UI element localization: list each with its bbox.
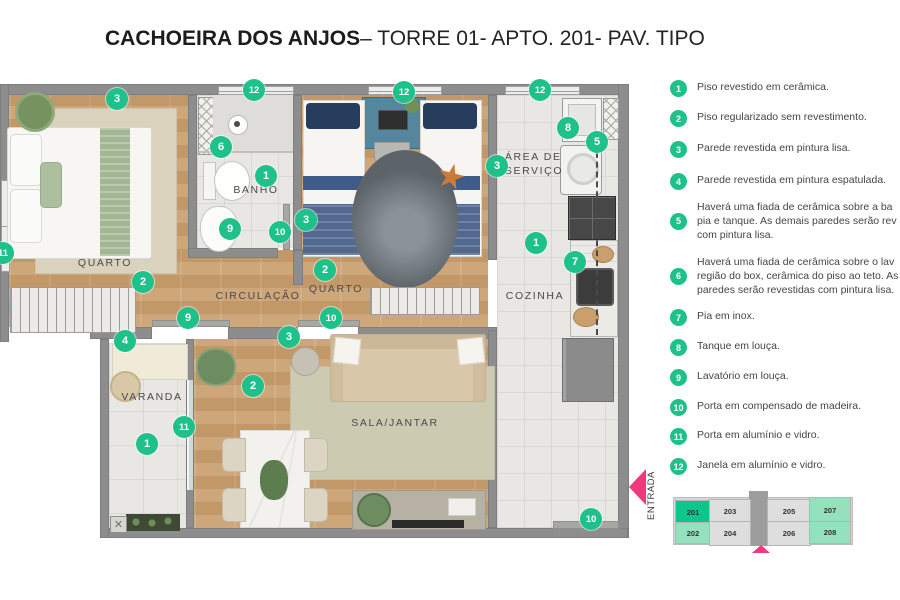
dining-chair bbox=[222, 438, 246, 472]
legend-item-text: Parede revestida em pintura lisa. bbox=[697, 141, 851, 155]
ceramic-band-dashed-line bbox=[596, 142, 598, 335]
legend-item-4: 4Parede revestida em pintura espatulada. bbox=[670, 173, 886, 190]
legend-number-badge: 5 bbox=[670, 213, 687, 230]
room-label-sala-jantar: SALA/JANTAR bbox=[351, 416, 438, 430]
pillow bbox=[10, 189, 42, 243]
wardrobe-quarto2 bbox=[370, 287, 480, 315]
plant-icon bbox=[196, 348, 236, 386]
legend-item-2: 2Piso regularizado sem revestimento. bbox=[670, 110, 867, 127]
plan-marker-7: 7 bbox=[564, 251, 586, 273]
plant-icon bbox=[357, 493, 391, 527]
legend-item-text: Janela em alumínio e vidro. bbox=[697, 458, 825, 472]
legend-item-text: Lavatório em louça. bbox=[697, 369, 789, 383]
plan-marker-12: 12 bbox=[393, 81, 415, 103]
plan-marker-9: 9 bbox=[177, 307, 199, 329]
plant-icon bbox=[15, 92, 55, 132]
legend-item-5: 5Haverá uma fiada de cerâmica sobre a ba… bbox=[670, 200, 897, 242]
sofa-pillow bbox=[457, 337, 486, 366]
legend-item-text: Pia em inox. bbox=[697, 309, 755, 323]
room-label-quarto-2: QUARTO bbox=[309, 282, 363, 296]
legend-item-text: Piso revestido em cerâmica. bbox=[697, 80, 829, 94]
sofa-pillow bbox=[333, 337, 362, 366]
wall-left-bottom bbox=[100, 339, 109, 538]
legend-number-badge: 1 bbox=[670, 80, 687, 97]
plan-marker-1: 1 bbox=[255, 165, 277, 187]
stove-icon bbox=[568, 196, 616, 240]
floor-plan-page: { "title": {"bold": "CACHOEIRA DOS ANJOS… bbox=[0, 0, 900, 600]
legend-number-badge: 6 bbox=[670, 268, 687, 285]
room-label-cozinha: COZINHA bbox=[506, 289, 564, 303]
project-name: CACHOEIRA DOS ANJOS bbox=[105, 27, 360, 50]
plan-marker-3: 3 bbox=[486, 155, 508, 177]
legend-item-11: 11Porta em alumínio e vidro. bbox=[670, 428, 820, 445]
dining-chair bbox=[304, 488, 328, 522]
legend-item-9: 9Lavatório em louça. bbox=[670, 369, 789, 386]
pillow-navy bbox=[306, 103, 360, 129]
legend-item-10: 10Porta em compensado de madeira. bbox=[670, 399, 861, 416]
title-suffix: – TORRE 01- APTO. 201- PAV. TIPO bbox=[360, 27, 705, 50]
legend-item-6: 6Haverá uma fiada de cerâmica sobre o la… bbox=[670, 255, 898, 297]
legend-item-text: Piso regularizado sem revestimento. bbox=[697, 110, 867, 124]
legend-item-text: Parede revestida em pintura espatulada. bbox=[697, 173, 886, 187]
shower-head-dot bbox=[234, 121, 240, 127]
tray-decor bbox=[448, 498, 476, 516]
dining-chair bbox=[222, 488, 246, 522]
wall-cozinha-left-top bbox=[488, 95, 497, 260]
plan-marker-10: 10 bbox=[320, 307, 342, 329]
keyplan-unit-204: 204 bbox=[709, 521, 751, 546]
plan-marker-3: 3 bbox=[106, 88, 128, 110]
laptop-icon bbox=[378, 110, 408, 130]
plan-marker-2: 2 bbox=[242, 375, 264, 397]
floor-plan: ✕ ★ QUARTOBANHOCIRCULAÇÃOQUARTOÁREA DE S… bbox=[0, 84, 629, 539]
plan-marker-2: 2 bbox=[314, 259, 336, 281]
legend-number-badge: 4 bbox=[670, 173, 687, 190]
drain-box-icon: ✕ bbox=[110, 516, 127, 533]
pillow bbox=[10, 134, 42, 186]
plan-marker-4: 4 bbox=[114, 330, 136, 352]
plan-marker-12: 12 bbox=[529, 79, 551, 101]
legend-item-8: 8Tanque em louça. bbox=[670, 339, 780, 356]
side-table-icon bbox=[291, 347, 320, 376]
legend-number-badge: 3 bbox=[670, 141, 687, 158]
washer-door bbox=[567, 153, 599, 185]
dining-chair bbox=[304, 438, 328, 472]
legend-number-badge: 7 bbox=[670, 309, 687, 326]
structural-pillar bbox=[603, 98, 619, 140]
wall-banho-bottom bbox=[188, 248, 278, 258]
keyplan-core bbox=[749, 491, 768, 546]
plan-marker-11: 11 bbox=[173, 416, 195, 438]
legend-number-badge: 10 bbox=[670, 399, 687, 416]
legend-number-badge: 2 bbox=[670, 110, 687, 127]
plan-marker-2: 2 bbox=[132, 271, 154, 293]
room-label-circulacao: CIRCULAÇÃO bbox=[216, 289, 301, 303]
legend-item-text: Tanque em louça. bbox=[697, 339, 780, 353]
room-label-quarto-1: QUARTO bbox=[78, 256, 132, 270]
plan-marker-3: 3 bbox=[295, 209, 317, 231]
entrada-label: ENTRADA bbox=[646, 464, 657, 520]
legend-item-text: Porta em alumínio e vidro. bbox=[697, 428, 820, 442]
wall-right bbox=[618, 84, 629, 538]
keyplan-unit-207: 207 bbox=[809, 497, 851, 524]
legend-number-badge: 8 bbox=[670, 339, 687, 356]
pillow-navy bbox=[423, 103, 477, 129]
legend-number-badge: 12 bbox=[670, 458, 687, 475]
plan-marker-6: 6 bbox=[210, 136, 232, 158]
room-label-varanda: VARANDA bbox=[121, 390, 182, 404]
plan-marker-10: 10 bbox=[269, 221, 291, 243]
entrada-arrow-icon bbox=[629, 469, 646, 505]
page-title: CACHOEIRA DOS ANJOS– TORRE 01- APTO. 201… bbox=[105, 27, 705, 51]
plan-marker-8: 8 bbox=[557, 117, 579, 139]
keyplan-unit-201: 201 bbox=[675, 500, 711, 524]
keyplan: 201203205207202204206208 bbox=[672, 488, 852, 554]
sink-pia-icon bbox=[576, 268, 614, 306]
wardrobe-quarto1 bbox=[10, 287, 136, 333]
plan-marker-12: 12 bbox=[243, 79, 265, 101]
bed-duvet-stripe bbox=[100, 128, 130, 256]
legend-item-12: 12Janela em alumínio e vidro. bbox=[670, 458, 825, 475]
legend-item-text: Haverá uma fiada de cerâmica sobre a bap… bbox=[697, 200, 897, 242]
keyplan-pointer-icon bbox=[752, 545, 770, 553]
legend-number-badge: 9 bbox=[670, 369, 687, 386]
planter-box bbox=[126, 514, 180, 531]
plan-marker-9: 9 bbox=[219, 218, 241, 240]
bed-stripe bbox=[303, 176, 363, 190]
wall-banho-left bbox=[188, 95, 197, 250]
legend-item-1: 1Piso revestido em cerâmica. bbox=[670, 80, 829, 97]
plan-marker-3: 3 bbox=[278, 326, 300, 348]
wall-circ-stub bbox=[293, 250, 303, 285]
keyplan-unit-202: 202 bbox=[675, 522, 711, 544]
plan-marker-10: 10 bbox=[580, 508, 602, 530]
keyplan-unit-206: 206 bbox=[767, 521, 811, 546]
plan-marker-5: 5 bbox=[586, 131, 608, 153]
legend-number-badge: 11 bbox=[670, 428, 687, 445]
tv-icon bbox=[392, 520, 464, 528]
centerpiece-plant-icon bbox=[260, 460, 288, 500]
plan-marker-1: 1 bbox=[136, 433, 158, 455]
legend-item-text: Haverá uma fiada de cerâmica sobre o lav… bbox=[697, 255, 898, 297]
legend-item-3: 3Parede revestida em pintura lisa. bbox=[670, 141, 851, 158]
keyplan-unit-208: 208 bbox=[809, 521, 851, 544]
legend-item-text: Porta em compensado de madeira. bbox=[697, 399, 861, 413]
legend-item-7: 7Pia em inox. bbox=[670, 309, 755, 326]
plan-marker-1: 1 bbox=[525, 232, 547, 254]
fridge-icon bbox=[562, 338, 614, 402]
room-label-area-de-servico: ÁREA DE SERVIÇO bbox=[505, 150, 563, 178]
pillow-accent bbox=[40, 162, 62, 208]
